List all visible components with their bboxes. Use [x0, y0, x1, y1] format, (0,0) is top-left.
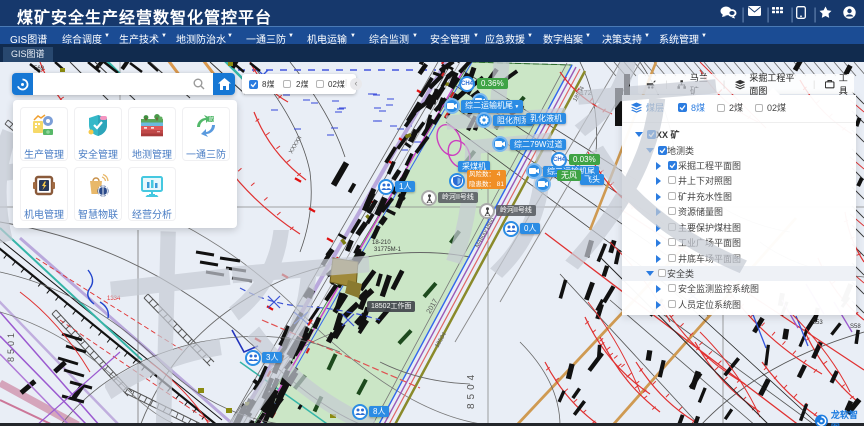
svg-text:31775M-1: 31775M-1 [374, 247, 402, 253]
svg-text:防: 防 [209, 116, 214, 123]
svg-text:18-210: 18-210 [372, 240, 391, 246]
svg-text:S53: S53 [812, 320, 823, 326]
svg-text:8501: 8501 [6, 330, 16, 362]
svg-text:8504: 8504 [466, 371, 477, 409]
svg-text:S58: S58 [850, 324, 861, 330]
svg-text:1334: 1334 [107, 296, 121, 302]
